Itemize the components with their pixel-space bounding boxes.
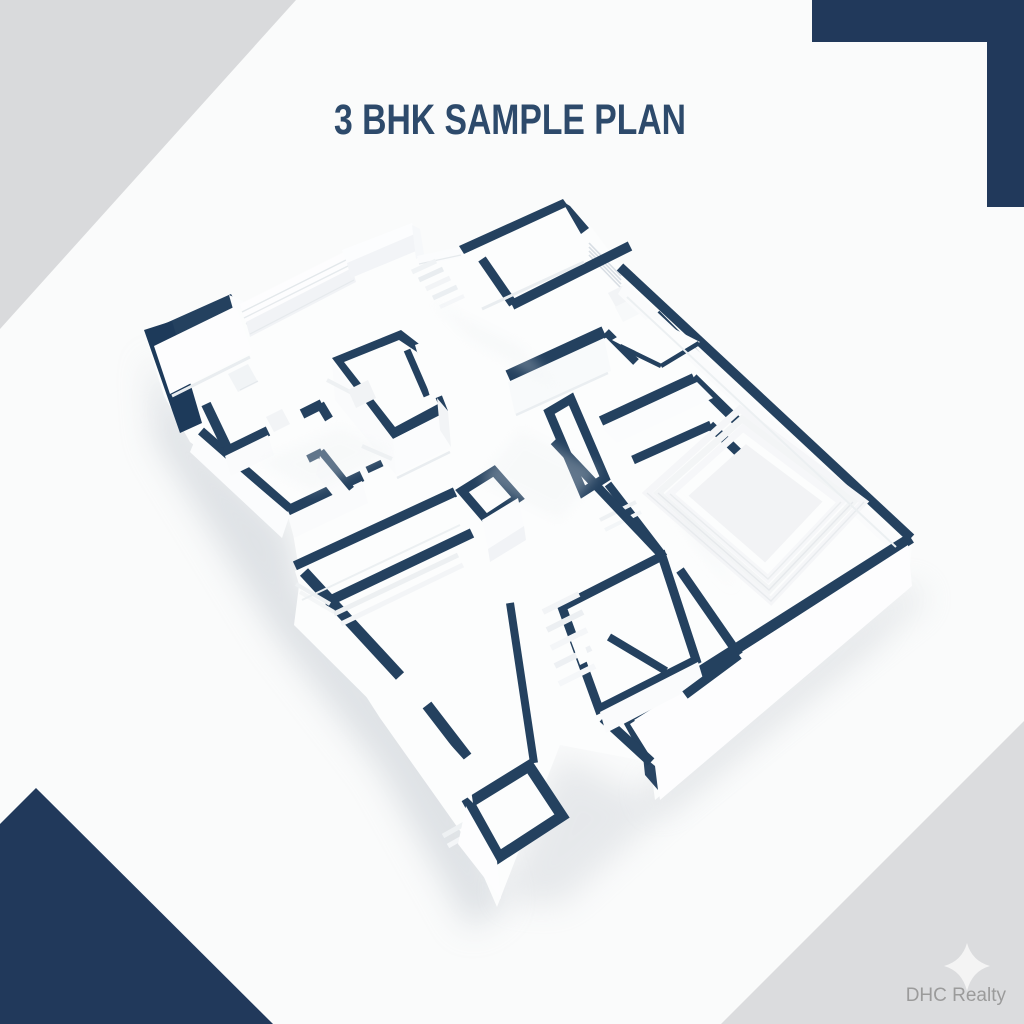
svg-text:3 BHK SAMPLE PLAN: 3 BHK SAMPLE PLAN (334, 96, 686, 144)
svg-text:DHC Realty: DHC Realty (906, 985, 1007, 1006)
